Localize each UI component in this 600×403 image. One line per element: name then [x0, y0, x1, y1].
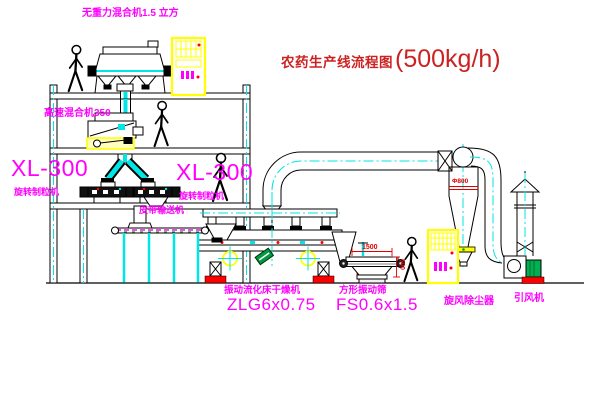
- control-cabinet-bottom: [428, 230, 458, 283]
- label-dryer-model: ZLG6x0.75: [227, 296, 316, 313]
- fan-stack-drawing: [504, 171, 544, 284]
- process-flow-drawing: 农药生产线流程图 (500kg/h) 无重力混合机1.5 立方 高速混合机350…: [0, 0, 600, 403]
- title-text: 农药生产线流程图: [281, 51, 393, 71]
- dimension-cyclone-diameter: Φ800: [452, 179, 468, 186]
- y-chute: [101, 154, 154, 182]
- label-granulator-left-name: 旋转制粒机: [14, 188, 59, 197]
- dimension-screen-height: 500: [398, 259, 405, 270]
- label-gravity-mixer: 无重力混合机1.5 立方: [82, 9, 179, 19]
- dimension-screen-width: 1500: [362, 244, 378, 251]
- label-granulator-right-model: XL-300: [176, 161, 253, 184]
- drawing-title: 农药生产线流程图 (500kg/h): [281, 45, 501, 74]
- label-granulator-right-name: 旋转制粒机: [179, 192, 224, 201]
- control-cabinet-top: [172, 38, 205, 95]
- label-fan: 引风机: [514, 294, 544, 304]
- label-screen-model: FS0.6x1.5: [336, 296, 418, 313]
- exhaust-duct: [263, 151, 452, 217]
- label-belt-conveyor: 皮带输送机: [139, 206, 184, 215]
- label-cyclone: 旋风除尘器: [444, 297, 494, 307]
- label-granulator-left-model: XL-300: [11, 157, 88, 180]
- high-speed-mixer-drawing: [87, 99, 143, 149]
- label-high-speed-mixer: 高速混合机350: [44, 109, 111, 119]
- title-capacity: (500kg/h): [395, 45, 501, 74]
